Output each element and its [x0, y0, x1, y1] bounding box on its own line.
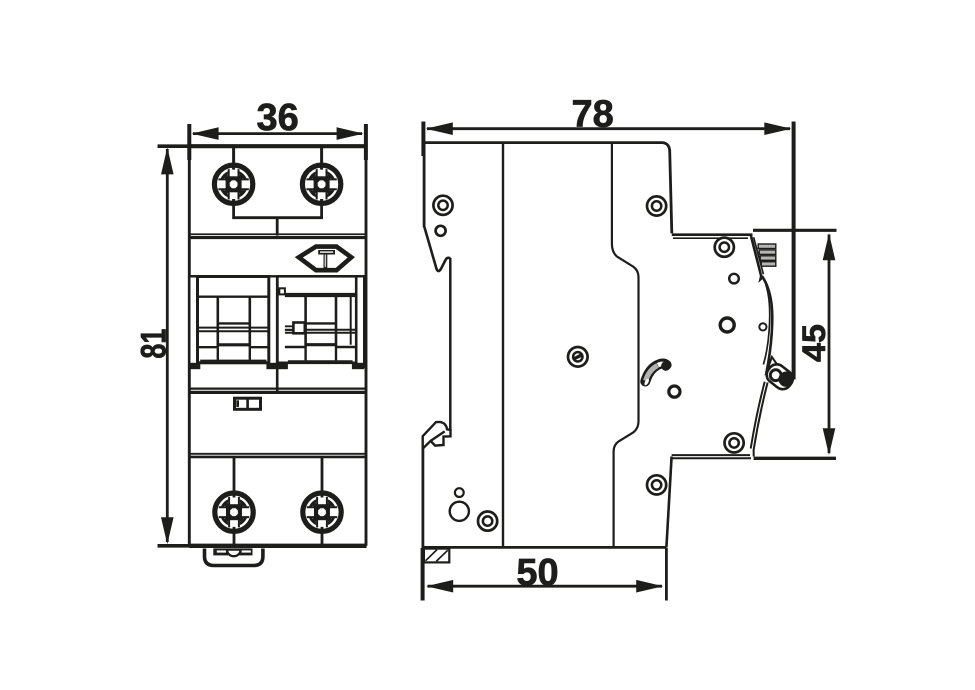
svg-text:45: 45	[796, 324, 832, 362]
svg-text:36: 36	[256, 97, 298, 139]
svg-text:50: 50	[516, 552, 558, 594]
svg-text:81: 81	[135, 329, 174, 359]
svg-text:78: 78	[571, 94, 613, 136]
